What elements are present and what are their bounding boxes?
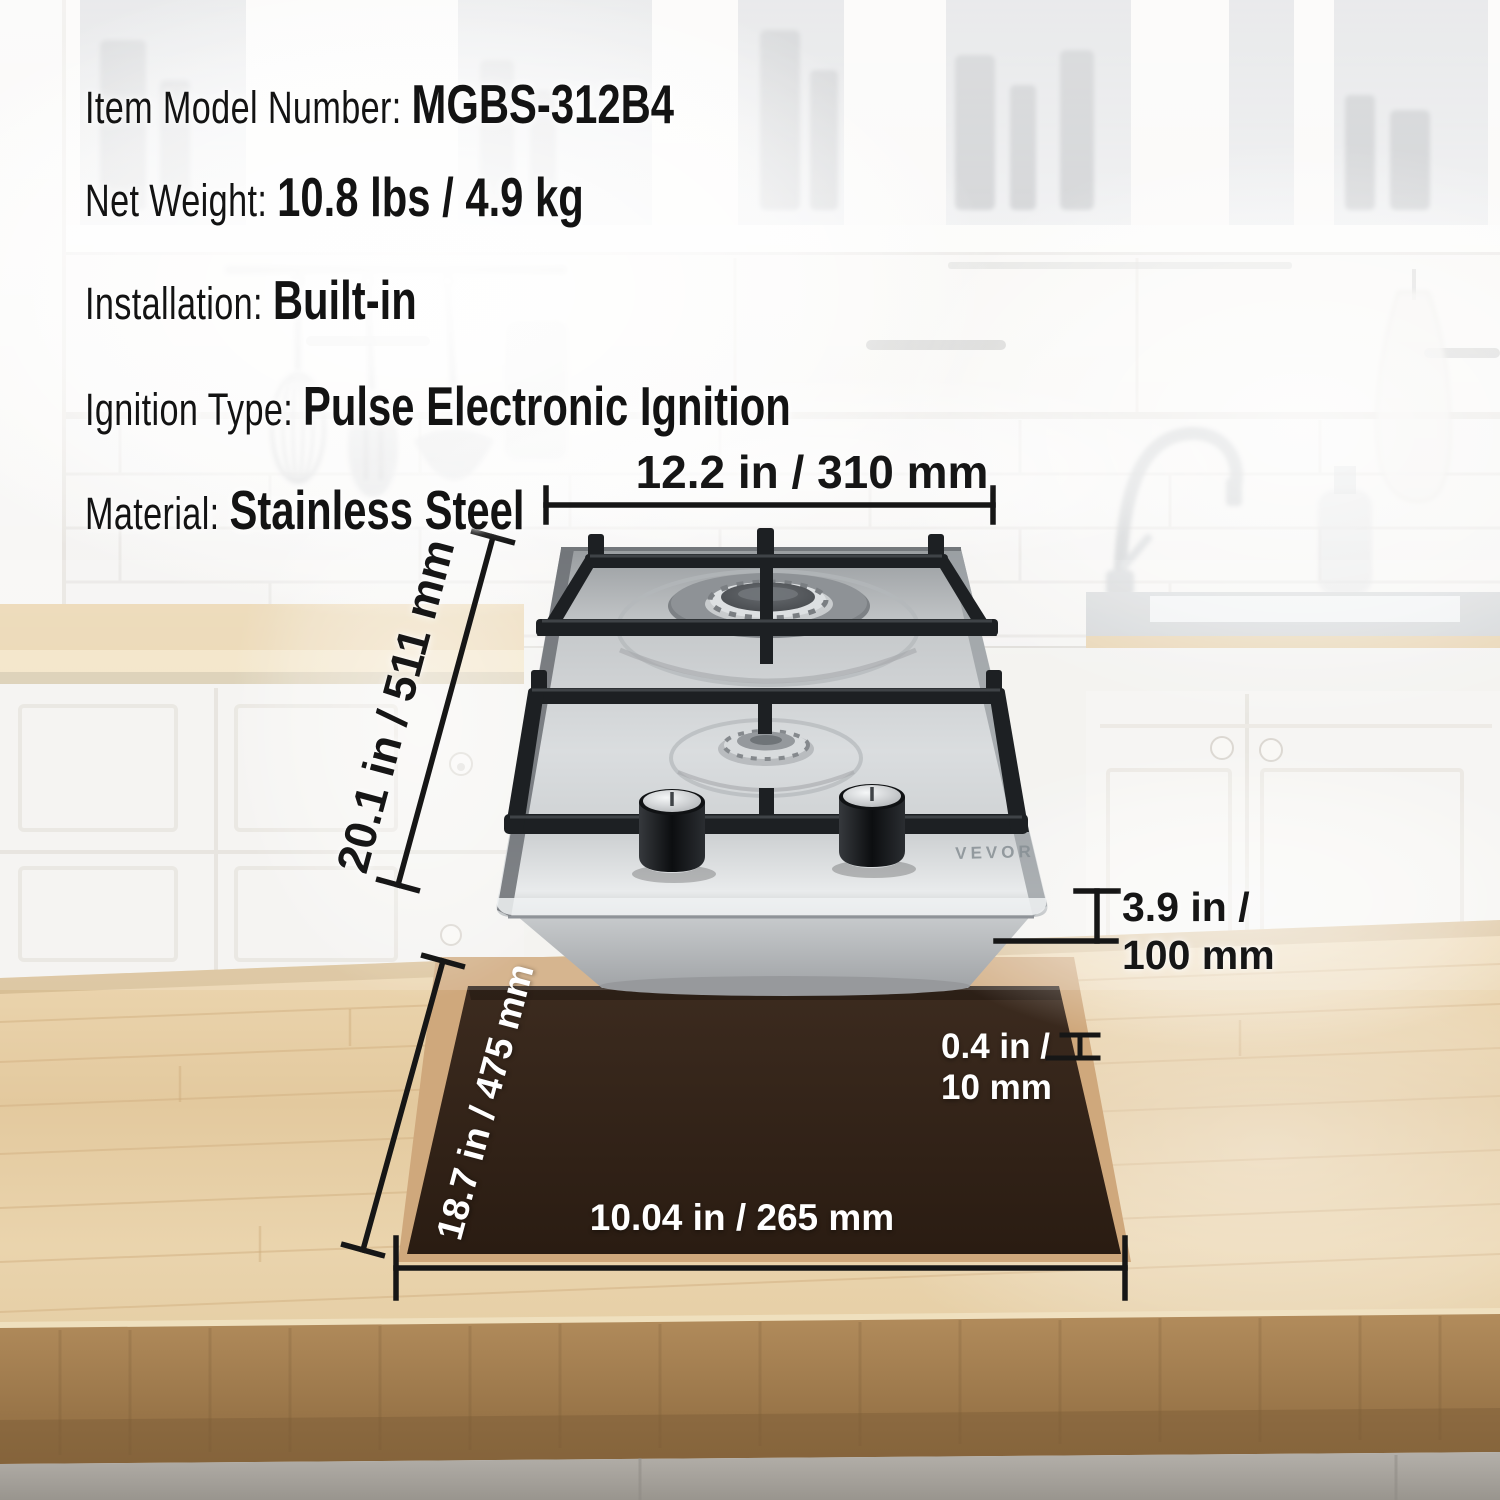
spec-label: Item Model Number:: [85, 82, 402, 134]
spec-row-ignition: Ignition Type: Pulse Electronic Ignition: [85, 374, 791, 438]
product-infographic: VEVOR Item Model Number: MGBS-312B4: [0, 0, 1500, 1500]
spec-label: Installation:: [85, 278, 263, 330]
spec-row-weight: Net Weight: 10.8 lbs / 4.9 kg: [85, 165, 584, 229]
spec-label: Net Weight:: [85, 175, 267, 227]
cutout-width-label: 10.04 in / 265 mm: [590, 1197, 894, 1240]
cooktop-illustration: VEVOR: [497, 528, 1048, 996]
control-knob-right: [832, 784, 916, 878]
spec-value: MGBS-312B4: [412, 72, 674, 136]
spec-value: Stainless Steel: [229, 478, 524, 542]
cooktop-width-label: 12.2 in / 310 mm: [636, 446, 989, 499]
spec-row-material: Material: Stainless Steel: [85, 478, 525, 542]
spec-value: Pulse Electronic Ignition: [303, 374, 791, 438]
spec-label: Material:: [85, 488, 220, 540]
counter-front: [0, 1308, 1500, 1500]
cooktop-height-label: 3.9 in / 100 mm: [1122, 884, 1275, 979]
spec-row-model: Item Model Number: MGBS-312B4: [85, 72, 674, 136]
spec-label: Ignition Type:: [85, 384, 293, 436]
cutout-thickness-label: 0.4 in / 10 mm: [941, 1027, 1052, 1108]
spec-row-installation: Installation: Built-in: [85, 268, 417, 332]
spec-value: Built-in: [273, 268, 417, 332]
spec-value: 10.8 lbs / 4.9 kg: [277, 165, 584, 229]
control-knob-left: [632, 789, 716, 883]
brand-logo: VEVOR: [955, 842, 1035, 863]
